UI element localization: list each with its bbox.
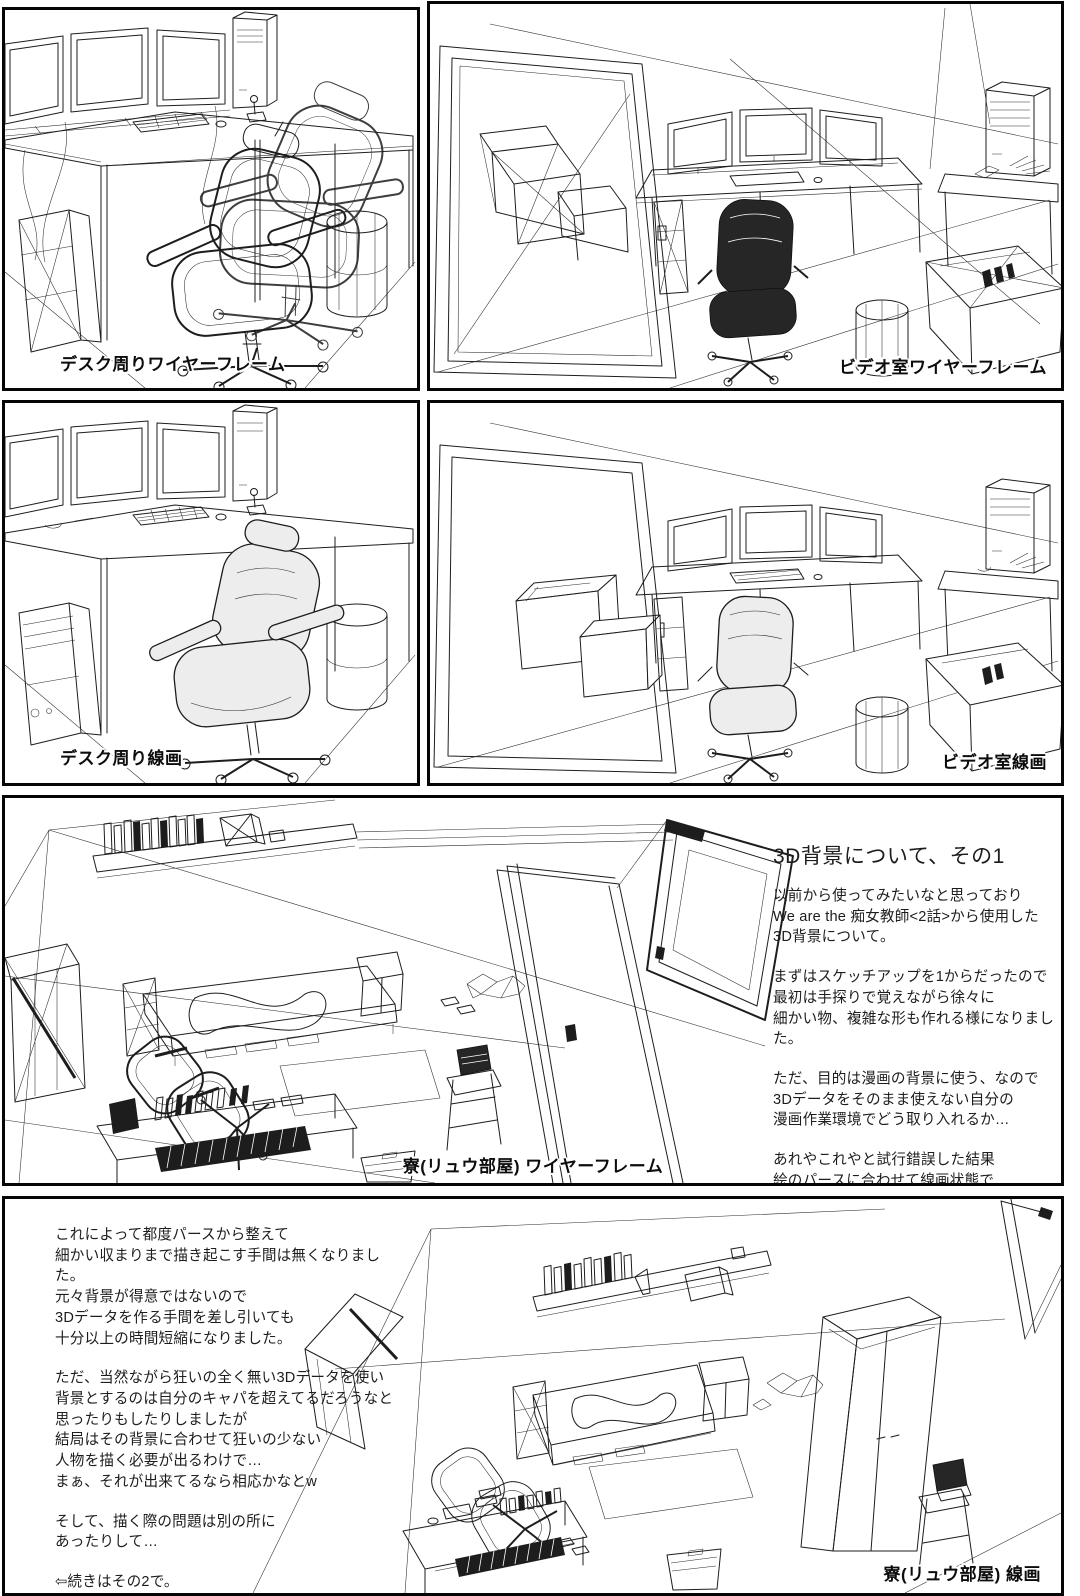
panel-video-wireframe: ビデオ室ワイヤーフレーム bbox=[427, 1, 1064, 391]
panel-desk-wireframe: デスク周りワイヤーフレーム bbox=[2, 7, 420, 391]
article-paragraph: そして、描く際の問題は別の所に あったりして… bbox=[55, 1512, 407, 1553]
article-3d-background-part1: 3D背景について、その1 以前から使ってみたいなと思っており We are th… bbox=[773, 840, 1055, 1186]
panel-desk-lineart: デスク周り線画 bbox=[2, 400, 420, 786]
article-paragraph: ただ、当然ながら狂いの全く無い3Dデータを使い 背景とするのは自分のキャパを超え… bbox=[55, 1368, 407, 1492]
article-paragraph: まずはスケッチアップを1からだったので 最初は手探りで覚えながら徐々に 細かい物… bbox=[773, 967, 1055, 1050]
video-lineart-drawing bbox=[430, 403, 1061, 783]
article-paragraph: 以前から使ってみたいなと思っており We are the 痴女教師<2話>から使… bbox=[773, 886, 1055, 948]
panel-label-video-lineart: ビデオ室線画 bbox=[942, 748, 1047, 773]
panel-label-video-wireframe: ビデオ室ワイヤーフレーム bbox=[839, 353, 1047, 378]
artbook-page: { "colors": {"paper": "#ffffff", "ink": … bbox=[0, 0, 1080, 1593]
article-3d-background-part1-cont: これによって都度パースから整えて 細かい収まりまで描き起こす手間は無くなりました… bbox=[55, 1225, 407, 1596]
article-paragraph: あれやこれやと試行錯誤した結果 絵のパースに合わせて線画状態で レンダリングした… bbox=[773, 1150, 1055, 1186]
article-paragraph: ⇦続きはその2で。 bbox=[55, 1572, 407, 1593]
desk-lineart-drawing bbox=[5, 403, 417, 783]
panel-dorm-wireframe: 3D背景について、その1 以前から使ってみたいなと思っており We are th… bbox=[2, 795, 1064, 1186]
panel-label-desk-lineart: デスク周り線画 bbox=[60, 744, 183, 769]
panel-label-desk-wireframe: デスク周りワイヤーフレーム bbox=[60, 350, 285, 375]
panel-dorm-lineart: これによって都度パースから整えて 細かい収まりまで描き起こす手間は無くなりました… bbox=[2, 1196, 1064, 1596]
desk-wireframe-drawing bbox=[5, 10, 417, 388]
panel-label-dorm-wireframe: 寮(リュウ部屋) ワイヤーフレーム bbox=[403, 1152, 664, 1177]
article-title: 3D背景について、その1 bbox=[773, 840, 1055, 870]
video-wireframe-drawing bbox=[430, 4, 1061, 388]
article-paragraph: ただ、目的は漫画の背景に使う、なので 3Dデータをそのまま使えない自分の 漫画作… bbox=[773, 1069, 1055, 1131]
article-paragraph: これによって都度パースから整えて 細かい収まりまで描き起こす手間は無くなりました… bbox=[55, 1225, 407, 1349]
panel-video-lineart: ビデオ室線画 bbox=[427, 400, 1064, 786]
panel-label-dorm-lineart: 寮(リュウ部屋) 線画 bbox=[883, 1560, 1041, 1585]
